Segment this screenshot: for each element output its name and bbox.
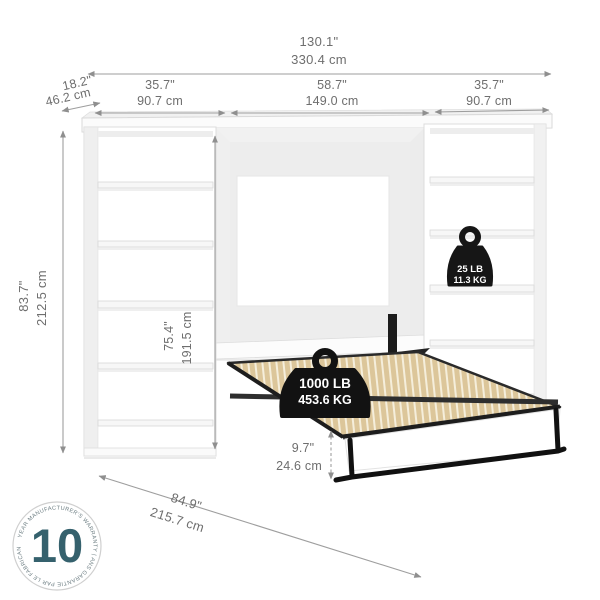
furniture-illustration: 25 LB 11.3 KG 1000 LB 453.6 KG — [82, 109, 564, 480]
shelf — [98, 301, 213, 308]
bed-cabinet-interior-top — [216, 128, 424, 142]
center-section-cm: 149.0 cm — [305, 94, 358, 108]
shelf — [98, 363, 213, 369]
right-bookcase-top-shadow — [430, 128, 534, 134]
bed-capacity-kg: 453.6 KG — [298, 393, 352, 407]
opening-height-in: 75.4" — [162, 321, 176, 351]
bed-cabinet — [216, 128, 424, 360]
floor-clearance-in: 9.7" — [292, 441, 315, 455]
right-bookcase-side-panel — [534, 124, 546, 442]
left-bookcase-top-shadow — [98, 131, 213, 137]
warranty-years: 10 — [31, 519, 83, 572]
shelf — [430, 230, 534, 236]
shelf-capacity-kg: 11.3 KG — [453, 275, 486, 285]
product-dimension-diagram: 25 LB 11.3 KG 1000 LB 453.6 KG 130.1" 33… — [0, 0, 600, 600]
left-section-in: 35.7" — [145, 78, 175, 92]
shelf-shadow — [98, 308, 213, 311]
floor-clearance-cm: 24.6 cm — [276, 459, 322, 473]
shelf-shadow — [430, 183, 534, 186]
left-bookcase-base — [84, 448, 216, 456]
left-bookcase — [84, 127, 216, 458]
center-section-in: 58.7" — [317, 78, 347, 92]
left-bookcase-body — [84, 127, 216, 456]
bed-cabinet-right-wall — [410, 128, 424, 352]
right-section-in: 35.7" — [474, 78, 504, 92]
bed-cabinet-left-wall — [216, 128, 230, 360]
shelf-shadow — [430, 292, 534, 295]
shelf-shadow — [98, 369, 213, 372]
bed-capacity-lb: 1000 LB — [299, 376, 351, 391]
overall-width-in: 130.1" — [300, 34, 339, 49]
shelf-shadow — [98, 188, 213, 191]
shelf-shadow — [430, 236, 534, 239]
left-section-cm: 90.7 cm — [137, 94, 183, 108]
shelf — [98, 241, 213, 247]
overall-height-cm: 212.5 cm — [34, 270, 49, 326]
shelf — [430, 177, 534, 183]
right-section-cm: 90.7 cm — [466, 94, 512, 108]
shelf-shadow — [430, 346, 534, 349]
opening-height-cm: 191.5 cm — [180, 311, 194, 364]
shelf-capacity-lb: 25 LB — [457, 264, 483, 275]
left-bookcase-side-panel — [84, 127, 98, 456]
open-depth-dim-line — [99, 476, 421, 577]
shelf — [98, 420, 213, 426]
shelf — [98, 182, 213, 188]
bed-cabinet-back-panel — [237, 176, 389, 306]
shelf-shadow — [98, 247, 213, 250]
overall-height-in: 83.7" — [16, 280, 31, 312]
shelf — [430, 340, 534, 346]
overall-width-cm: 330.4 cm — [291, 52, 347, 67]
diagram-canvas: 25 LB 11.3 KG 1000 LB 453.6 KG 130.1" 33… — [0, 0, 600, 600]
